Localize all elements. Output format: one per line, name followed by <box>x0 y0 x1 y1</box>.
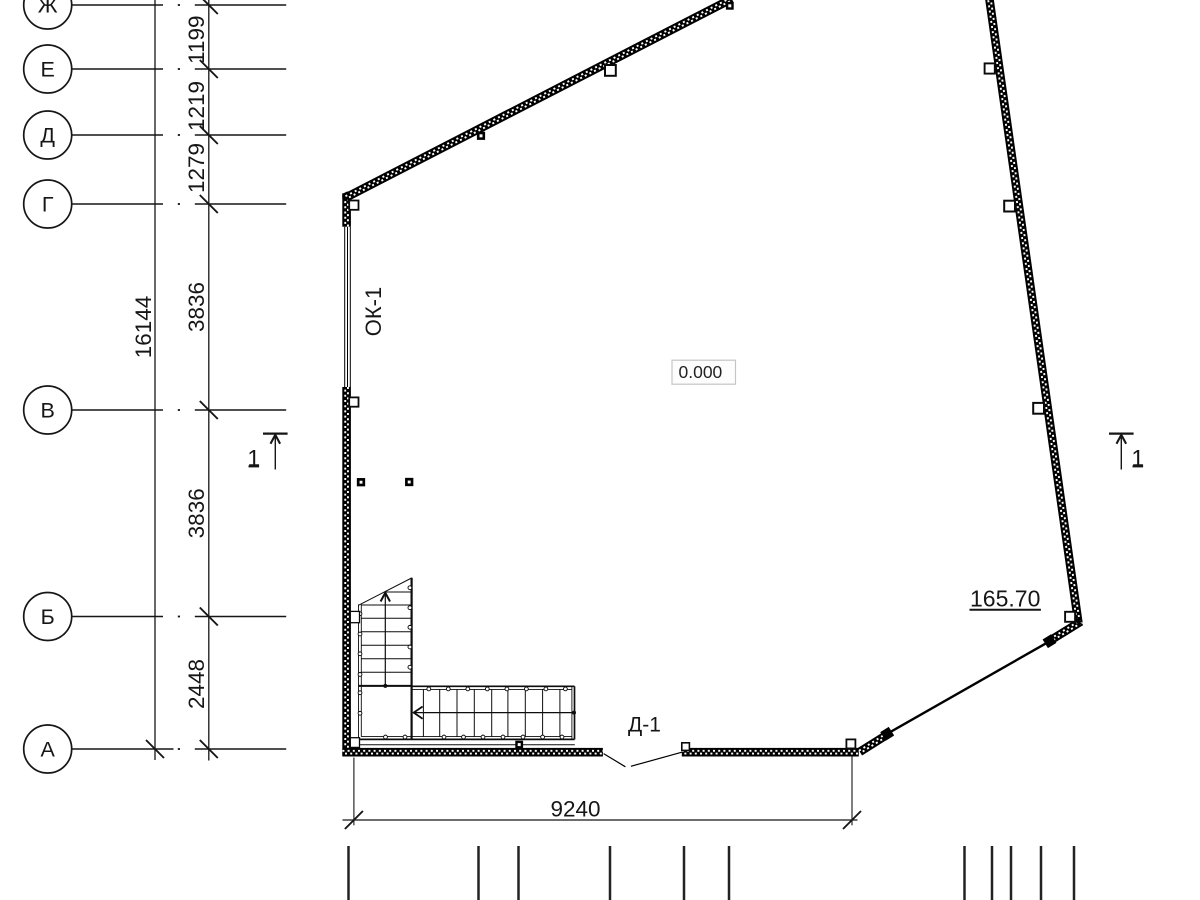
svg-text:1199: 1199 <box>184 16 209 64</box>
svg-text:Г: Г <box>42 193 54 217</box>
svg-text:Е: Е <box>41 58 55 82</box>
svg-text:1279: 1279 <box>184 143 209 193</box>
svg-text:165.70: 165.70 <box>970 585 1040 611</box>
svg-text:1219: 1219 <box>184 81 209 131</box>
svg-text:3836: 3836 <box>184 488 209 538</box>
svg-text:16144: 16144 <box>131 296 156 359</box>
svg-text:3836: 3836 <box>184 282 209 332</box>
svg-text:Ж: Ж <box>38 0 58 18</box>
svg-text:9240: 9240 <box>550 797 600 822</box>
svg-text:ОК-1: ОК-1 <box>361 287 386 337</box>
svg-text:2448: 2448 <box>184 659 209 709</box>
svg-text:Б: Б <box>41 605 55 629</box>
svg-text:В: В <box>41 399 55 423</box>
svg-text:0.000: 0.000 <box>679 362 723 382</box>
svg-text:Д: Д <box>40 124 55 148</box>
svg-text:Д-1: Д-1 <box>628 714 661 737</box>
svg-text:А: А <box>41 738 56 762</box>
